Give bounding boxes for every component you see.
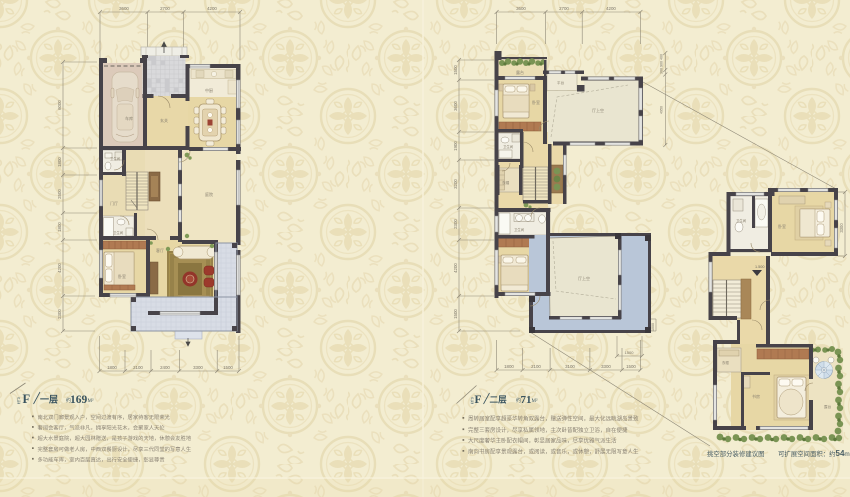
svg-text:2700: 2700 xyxy=(559,6,569,11)
svg-text:衣帽: 衣帽 xyxy=(502,180,510,185)
svg-text:1500: 1500 xyxy=(625,350,635,355)
svg-text:厅上空: 厅上空 xyxy=(592,107,604,113)
svg-text:二层: 二层 xyxy=(490,395,508,405)
svg-text:169: 169 xyxy=(70,394,88,406)
svg-text:庭院: 庭院 xyxy=(205,191,213,197)
svg-text:6000: 6000 xyxy=(57,100,62,110)
svg-text:3600: 3600 xyxy=(119,6,129,11)
svg-text:1500: 1500 xyxy=(453,309,458,319)
svg-text:3300: 3300 xyxy=(839,223,844,233)
svg-text:平台: 平台 xyxy=(557,80,565,85)
svg-text:周转居室配享超豪华转角双露台，赠送弹性空间，最大化远眺湖岛景: 周转居室配享超豪华转角双露台，赠送弹性空间，最大化远眺湖岛景致 xyxy=(468,415,639,423)
svg-text:3100: 3100 xyxy=(565,364,575,369)
svg-text:M²: M² xyxy=(532,398,538,404)
svg-text:2400: 2400 xyxy=(160,365,170,370)
svg-text:门厅: 门厅 xyxy=(110,200,118,206)
svg-text:2500: 2500 xyxy=(57,189,62,199)
svg-text:2300: 2300 xyxy=(453,219,458,229)
svg-text:2100: 2100 xyxy=(531,364,541,369)
svg-text:3600: 3600 xyxy=(453,101,458,111)
svg-text:1500: 1500 xyxy=(626,364,636,369)
svg-text:玄关: 玄关 xyxy=(160,117,168,123)
svg-text:厅上空: 厅上空 xyxy=(578,275,590,281)
svg-text:4200: 4200 xyxy=(453,263,458,273)
svg-text:卫生间: 卫生间 xyxy=(113,230,124,235)
svg-text:车库: 车库 xyxy=(125,115,133,121)
svg-text:1800: 1800 xyxy=(57,157,62,167)
svg-text:4200: 4200 xyxy=(606,6,616,11)
svg-text:F: F xyxy=(23,392,31,406)
svg-text:71: 71 xyxy=(521,394,532,406)
svg-text:1800: 1800 xyxy=(57,222,62,232)
svg-text:多功能车库，室内百层直达，出行安全便捷，彰显尊贵: 多功能车库，室内百层直达，出行安全便捷，彰显尊贵 xyxy=(38,455,166,463)
svg-text:衣帽: 衣帽 xyxy=(722,360,729,365)
svg-text:3300: 3300 xyxy=(193,365,203,370)
svg-text:卧室: 卧室 xyxy=(532,99,540,105)
svg-text:卫生间: 卫生间 xyxy=(736,218,747,223)
svg-text:可扩展空间面积：约54m²: 可扩展空间面积：约54m² xyxy=(778,449,850,458)
svg-text:4200: 4200 xyxy=(57,263,62,273)
svg-text:中厨: 中厨 xyxy=(205,87,213,93)
svg-text:卧室: 卧室 xyxy=(118,273,126,279)
svg-text:4200: 4200 xyxy=(207,6,217,11)
svg-text:F: F xyxy=(475,394,482,406)
svg-text:4950: 4950 xyxy=(660,106,664,114)
svg-text:露台: 露台 xyxy=(824,404,832,409)
svg-text:露台: 露台 xyxy=(516,69,524,75)
svg-text:挑空部分装修建议图: 挑空部分装修建议图 xyxy=(707,449,765,458)
svg-text:3200: 3200 xyxy=(453,179,458,189)
svg-text:1800: 1800 xyxy=(107,365,117,370)
svg-text:卫生间: 卫生间 xyxy=(503,144,514,149)
svg-text:1000: 1000 xyxy=(651,323,655,331)
svg-text:完整三套房设计，尽享私属领地，主次卧皆配独立卫浴，自在便捷: 完整三套房设计，尽享私属领地，主次卧皆配独立卫浴，自在便捷 xyxy=(468,426,628,434)
svg-text:南北双门廊景观入户，空间过渡有序，居家待客无限荣光: 南北双门廊景观入户，空间过渡有序，居家待客无限荣光 xyxy=(38,413,171,421)
svg-text:1500: 1500 xyxy=(453,65,458,75)
svg-text:2300: 2300 xyxy=(57,309,62,319)
svg-text:卧室: 卧室 xyxy=(778,223,786,229)
svg-text:书房: 书房 xyxy=(752,393,760,399)
svg-text:完整套房可做老人房，中西双餐厨设计，尽享三代同堂的写意人生: 完整套房可做老人房，中西双餐厨设计，尽享三代同堂的写意人生 xyxy=(38,445,192,453)
svg-text:超大水景庭院，超大园林赠送，是孩子游戏的天地，休憩会友胜地: 超大水景庭院，超大园林赠送，是孩子游戏的天地，休憩会友胜地 xyxy=(38,434,192,442)
svg-text:卫生间: 卫生间 xyxy=(110,156,121,161)
svg-text:M²: M² xyxy=(88,398,94,404)
svg-text:卫生间: 卫生间 xyxy=(514,227,525,232)
svg-text:南向书房配享景观露台，或阅读，或音乐，或休憩，舒展无限写意人: 南向书房配享景观露台，或阅读，或音乐，或休憩，舒展无限写意人生 xyxy=(468,448,639,456)
svg-text:奢阔会客厅，气派非凡，拥享阳光花木，会聚家人天伦: 奢阔会客厅，气派非凡，拥享阳光花木，会聚家人天伦 xyxy=(38,424,166,432)
svg-text:3300: 3300 xyxy=(601,364,611,369)
svg-text:1500: 1500 xyxy=(223,365,233,370)
svg-text:2100: 2100 xyxy=(133,365,143,370)
svg-text:300 900 400: 300 900 400 xyxy=(660,54,664,74)
svg-text:1800: 1800 xyxy=(504,364,514,369)
svg-text:1900: 1900 xyxy=(453,141,458,151)
svg-text:客厅: 客厅 xyxy=(156,247,164,253)
svg-text:大尺度奢华主卧配衣帽间，彰显居家品味，尽享优雅气派生活: 大尺度奢华主卧配衣帽间，彰显居家品味，尽享优雅气派生活 xyxy=(468,437,617,445)
svg-text:1.500: 1.500 xyxy=(755,265,765,269)
svg-text:一层: 一层 xyxy=(40,395,58,405)
svg-text:户型: 户型 xyxy=(17,396,21,405)
svg-text:2700: 2700 xyxy=(160,6,170,11)
svg-text:3600: 3600 xyxy=(516,6,526,11)
